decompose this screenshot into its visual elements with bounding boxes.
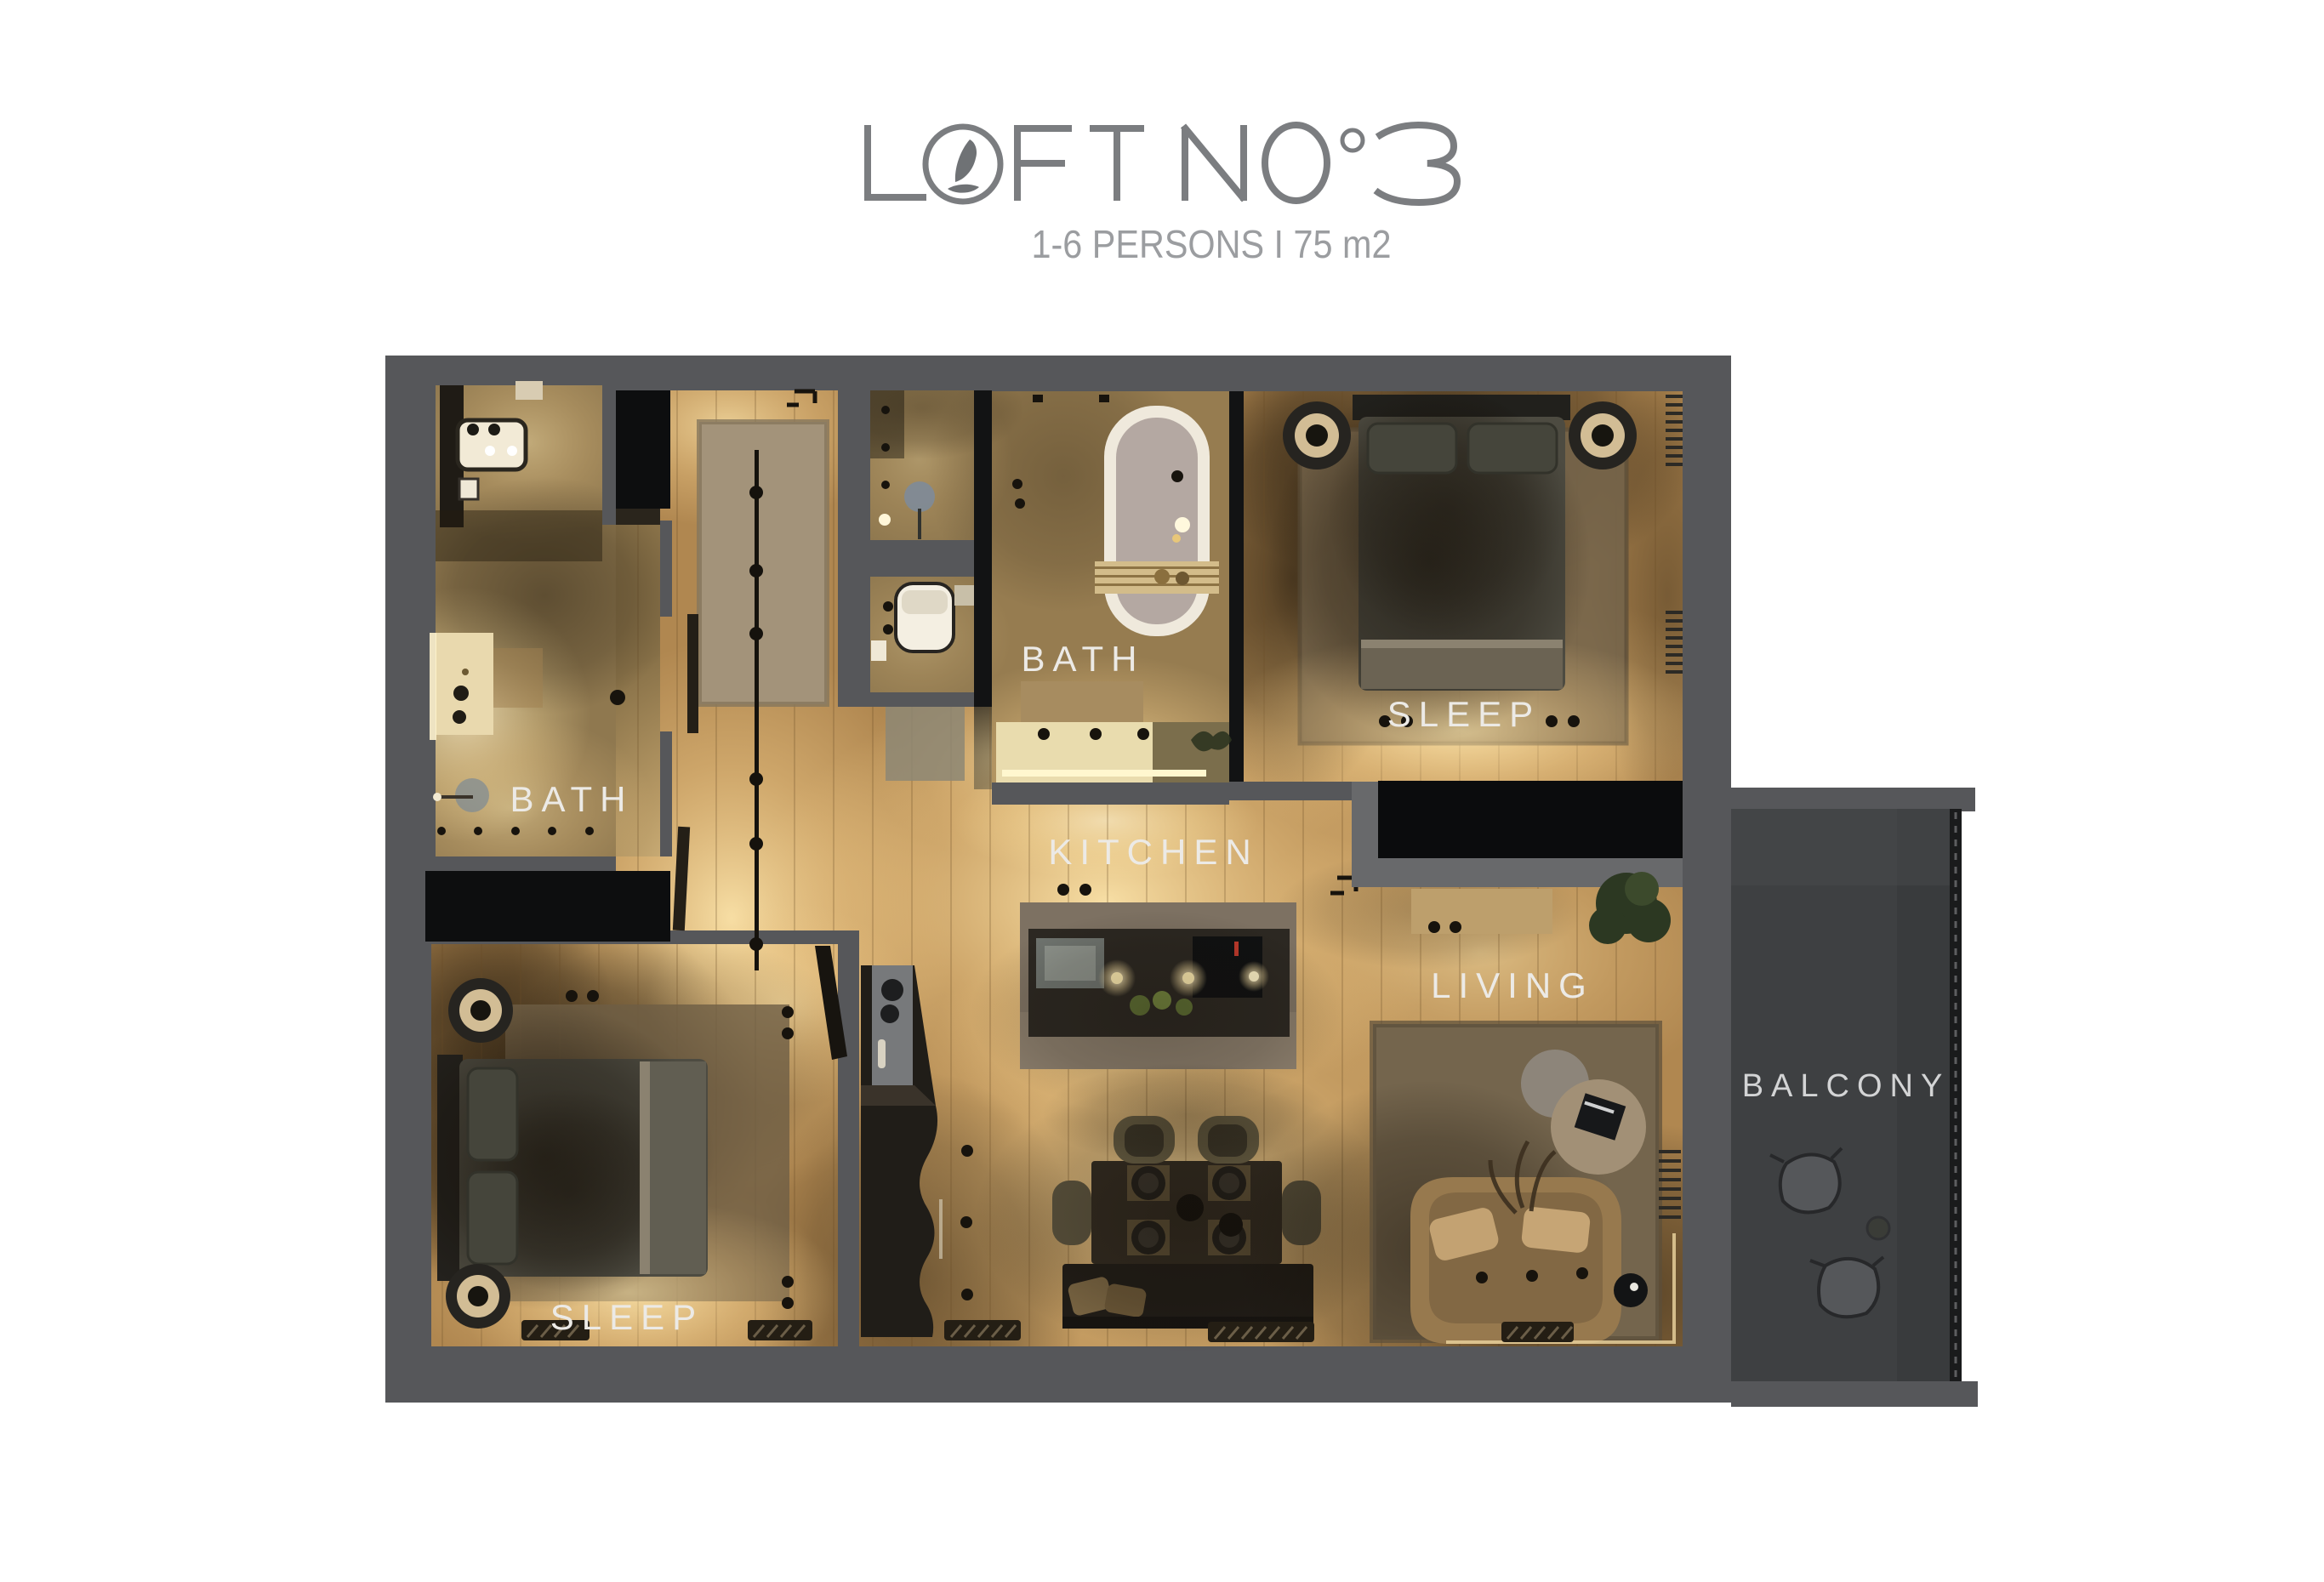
svg-text:SLEEP: SLEEP <box>550 1297 703 1337</box>
svg-text:SLEEP: SLEEP <box>1387 694 1541 734</box>
svg-text:1-6 PERSONS I 75 m2: 1-6 PERSONS I 75 m2 <box>1032 222 1392 266</box>
svg-text:KITCHEN: KITCHEN <box>1048 832 1258 872</box>
svg-text:LIVING: LIVING <box>1431 965 1594 1005</box>
svg-text:BALCONY: BALCONY <box>1742 1068 1951 1104</box>
svg-text:BATH: BATH <box>510 779 634 819</box>
svg-text:BATH: BATH <box>1022 639 1145 679</box>
